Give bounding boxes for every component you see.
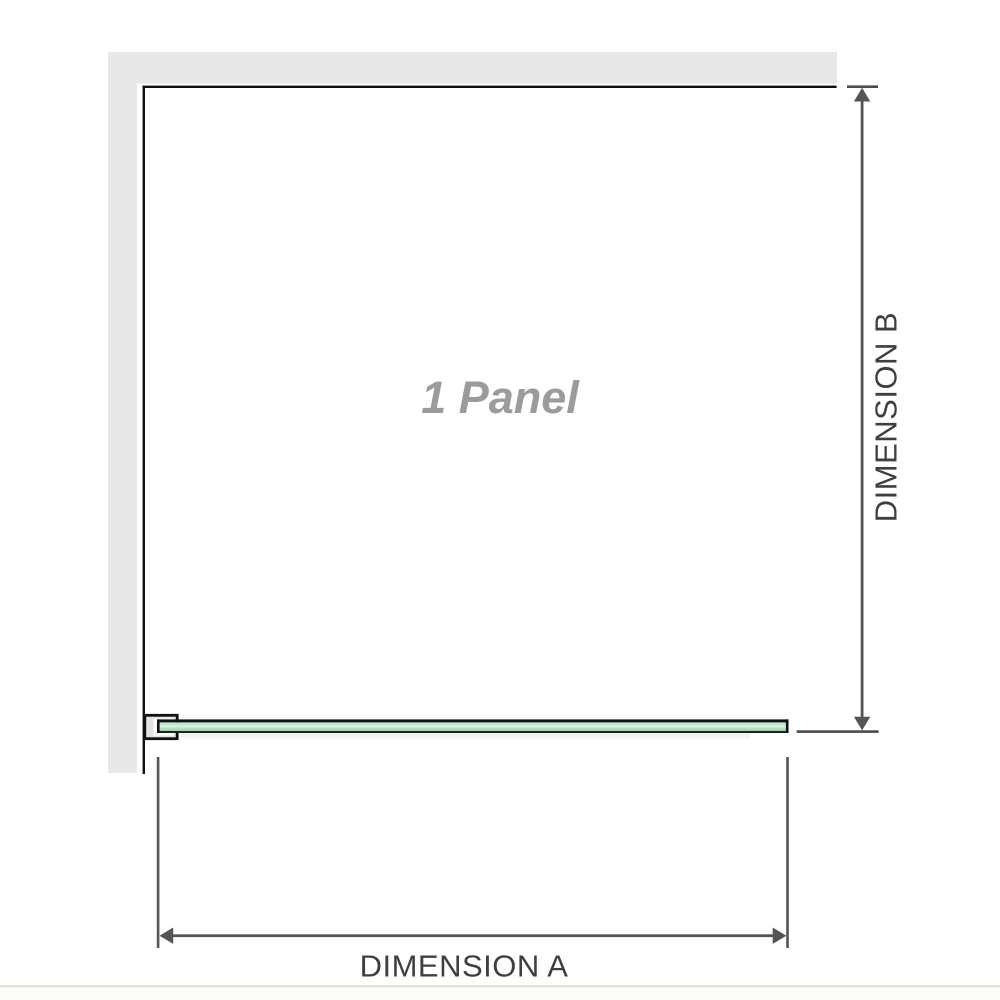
svg-text:DIMENSION A: DIMENSION A bbox=[360, 949, 569, 984]
svg-text:1 Panel: 1 Panel bbox=[421, 372, 580, 423]
svg-text:DIMENSION B: DIMENSION B bbox=[869, 312, 904, 522]
